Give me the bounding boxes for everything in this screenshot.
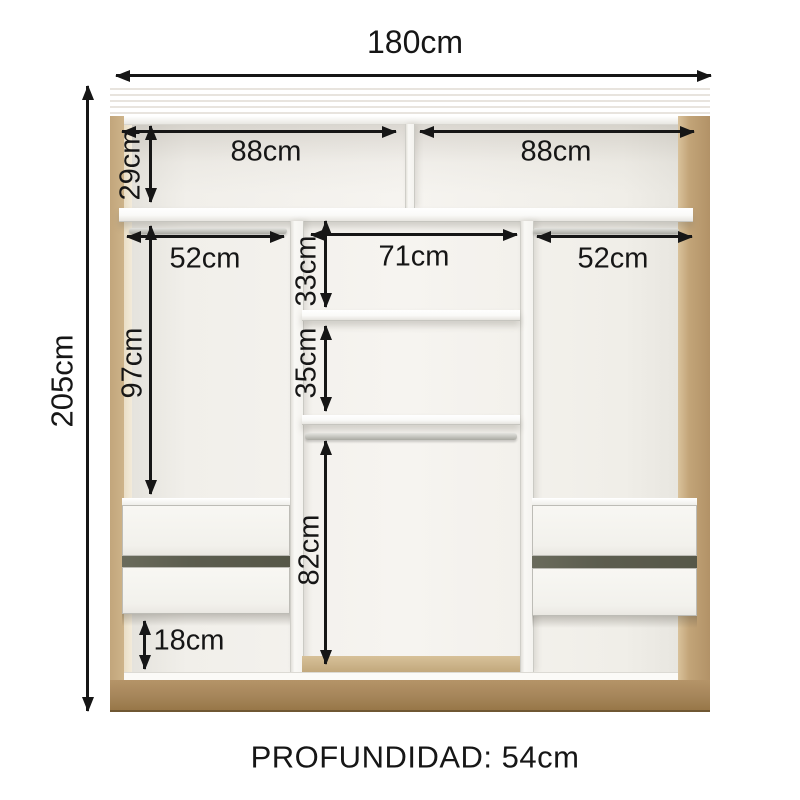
drawer-unit-left [122, 498, 290, 626]
center-floor [302, 656, 520, 672]
dim-top-right-width-label: 88cm [521, 138, 592, 167]
dim-center-middle-height-label: 35cm [293, 328, 322, 399]
hanging-rod-right [533, 228, 679, 234]
dim-center-width-label: 71cm [379, 243, 450, 272]
hanging-rod-center [305, 433, 517, 440]
top-center-divider [405, 124, 415, 208]
dim-left-hanging-height-label: 97cm [119, 328, 148, 399]
depth-label: PROFUNDIDAD: 54cm [251, 742, 580, 773]
center-shelf-upper [302, 310, 520, 321]
dim-top-left-width-arrow [122, 130, 396, 133]
dim-center-width-arrow [311, 233, 517, 236]
dim-center-middle-height-arrow [324, 326, 327, 411]
top-shelf [119, 208, 693, 222]
drawer-right-2 [532, 568, 697, 616]
dim-plinth-gap-arrow [143, 621, 146, 669]
wardrobe-dimension-diagram: 180cm 205cm 88cm 88cm 29cm 52cm 97cm 71c… [0, 0, 800, 800]
dim-left-rod-width-label: 52cm [170, 245, 241, 274]
dim-total-width-label: 180cm [367, 26, 463, 58]
interior-top-shadow [124, 124, 678, 194]
base-plinth-panel [110, 680, 710, 712]
dim-total-width-arrow [116, 74, 711, 77]
dim-total-height-arrow [86, 86, 89, 711]
dim-top-section-height-arrow [149, 126, 152, 202]
drawer-left-1 [122, 505, 290, 556]
drawer-right-handle-gap [532, 556, 697, 568]
drawer-left-2 [122, 567, 290, 614]
dim-top-right-width-arrow [420, 130, 694, 133]
dim-right-rod-width-arrow [537, 235, 692, 238]
center-shelf-lower [302, 415, 520, 425]
drawer-left-handle-gap [122, 556, 290, 567]
top-panel [110, 88, 710, 116]
drawer-right-shadow [532, 616, 697, 628]
dim-center-upper-height-label: 33cm [293, 236, 322, 307]
dim-left-hanging-height-arrow [149, 226, 152, 494]
dim-top-left-width-label: 88cm [231, 138, 302, 167]
dim-total-height-label: 205cm [47, 334, 78, 427]
drawer-right-1 [532, 505, 697, 556]
dim-plinth-gap-label: 18cm [154, 627, 225, 656]
dim-right-rod-width-label: 52cm [578, 245, 649, 274]
dim-center-lower-height-label: 82cm [296, 515, 325, 586]
dim-top-section-height-label: 29cm [117, 130, 146, 201]
dim-center-upper-height-arrow [324, 221, 327, 307]
ceiling-face [124, 116, 678, 125]
drawer-unit-right [532, 498, 697, 628]
